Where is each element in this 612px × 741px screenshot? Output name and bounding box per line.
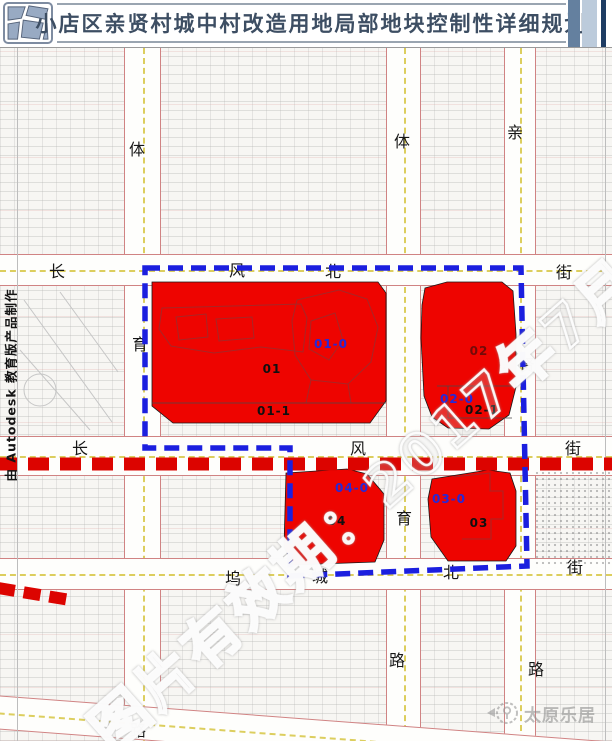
road-label: 北 <box>443 559 459 583</box>
accent-bar <box>601 0 606 47</box>
road-label: 长 <box>49 258 65 282</box>
road-label: 贤 <box>519 352 535 376</box>
road-centerline <box>520 48 522 741</box>
road-centerline <box>0 456 612 458</box>
plot-label-03: 03 <box>470 516 489 530</box>
accent-bar <box>582 0 597 47</box>
road-label: 风 <box>229 257 245 281</box>
road-label: 路 <box>389 647 405 671</box>
road-label: 体 <box>394 128 410 152</box>
page-title: 小店区亲贤村城中村改造用地局部地块控制性详细规划 <box>36 8 588 38</box>
road-label: 风 <box>350 435 366 459</box>
plot-label-01-1: 01-1 <box>257 404 291 418</box>
road-label: 体 <box>129 136 145 160</box>
road-label: 街 <box>567 554 583 578</box>
road-label: 街 <box>556 259 572 283</box>
road-centerline <box>0 574 612 576</box>
road-label: 北 <box>325 258 341 282</box>
road-label: 路 <box>130 717 146 741</box>
road-centerline <box>0 270 612 272</box>
road-label: 育 <box>396 505 412 529</box>
plot-label-01-0: 01-0 <box>314 337 348 351</box>
plot-label-04: 04 <box>328 514 347 528</box>
map-frame-right <box>605 47 606 741</box>
road-wucheng-north <box>0 558 612 590</box>
road-label: 坞 <box>225 565 241 589</box>
accent-bar <box>568 0 580 47</box>
plot-label-04-0: 04-0 <box>335 481 369 495</box>
plot-label-02: 02 <box>470 344 489 358</box>
road-label: 路 <box>528 656 544 680</box>
road-label: 育 <box>132 331 148 355</box>
leju-logo-text: 太原乐居 <box>524 701 596 726</box>
leju-logo: 太原乐居 <box>486 699 596 727</box>
road-changfeng <box>0 436 612 476</box>
planning-map-page: 小店区亲贤村城中村改造用地局部地块控制性详细规划 体 育 体 育 路 亲 贤 路… <box>0 0 612 741</box>
road-changfeng-north <box>0 254 612 286</box>
autocad-education-note: 由 Autodesk 教育版产品制作 <box>1 288 20 481</box>
plot-label-03-0: 03-0 <box>432 492 466 506</box>
title-frame: 小店区亲贤村城中村改造用地局部地块控制性详细规划 <box>57 3 566 43</box>
header-accent-bars <box>568 0 612 47</box>
plot-label-01: 01 <box>263 362 282 376</box>
road-label: 亲 <box>507 119 523 143</box>
header: 小店区亲贤村城中村改造用地局部地块控制性详细规划 <box>0 0 612 48</box>
road-qinxian <box>504 48 536 741</box>
road-label: 街 <box>565 435 581 459</box>
road-label: 长 <box>72 435 88 459</box>
compass-pin-icon <box>486 699 520 727</box>
road-label: 城 <box>312 563 328 587</box>
plot-label-02-1: 02-1 <box>465 403 499 417</box>
